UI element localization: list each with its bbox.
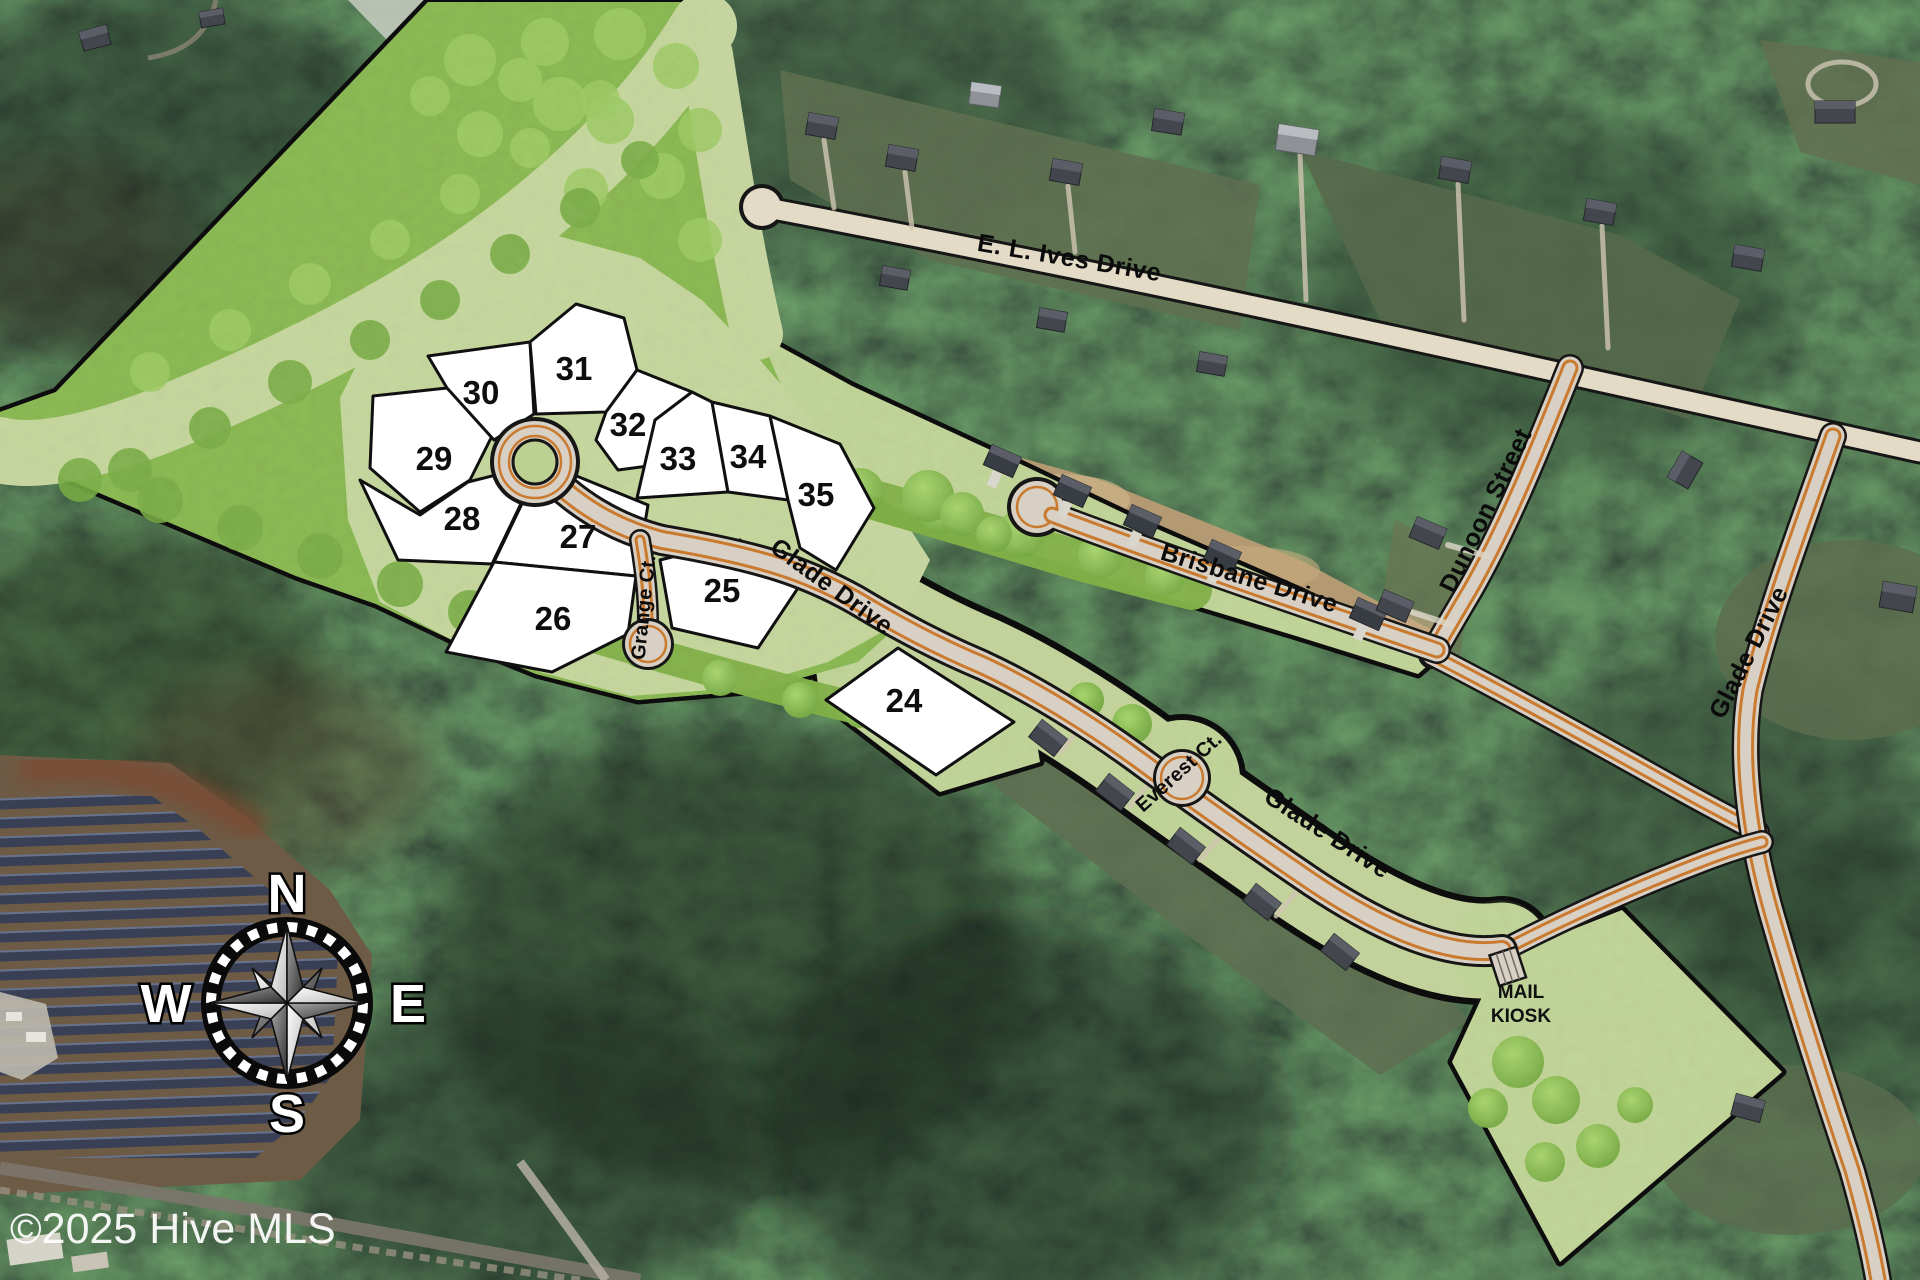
lot-34-label: 34 — [730, 438, 767, 475]
house — [1731, 245, 1764, 272]
lot-30-label: 30 — [463, 374, 500, 411]
compass-west-label: W — [141, 974, 192, 1034]
house — [1583, 199, 1616, 226]
lot-24-label: 24 — [886, 682, 923, 719]
lot-27-label: 27 — [560, 518, 597, 555]
house-red-roof — [1879, 581, 1917, 613]
mail-kiosk-label-line1: MAIL — [1498, 982, 1545, 1003]
lot-26-label: 26 — [535, 600, 572, 637]
house — [199, 8, 225, 28]
house — [885, 145, 918, 172]
lot-32-label: 32 — [610, 406, 647, 443]
compass-north-label: N — [268, 864, 307, 924]
lot-28-label: 28 — [444, 500, 481, 537]
lot-33-label: 33 — [660, 440, 697, 477]
house — [1815, 101, 1855, 123]
lot-35-label: 35 — [798, 476, 835, 513]
lot-31-label: 31 — [556, 350, 593, 387]
compass-south-label: S — [269, 1084, 305, 1144]
house — [805, 113, 838, 140]
house — [879, 266, 910, 291]
watermark-copyright: ©2025 Hive MLS — [10, 1205, 336, 1253]
house — [969, 82, 1002, 108]
compass-east-label: E — [390, 974, 426, 1034]
lot-29-label: 29 — [416, 440, 453, 477]
house — [1151, 109, 1184, 135]
lot-25-label: 25 — [704, 572, 741, 609]
house — [1196, 352, 1227, 377]
map-canvas: 24 25 26 27 28 29 30 31 32 33 34 35 E. L… — [0, 0, 1920, 1280]
site-plan-map: 24 25 26 27 28 29 30 31 32 33 34 35 E. L… — [0, 0, 1920, 1280]
house — [1036, 308, 1067, 333]
house — [1049, 159, 1082, 186]
roundabout — [490, 417, 580, 507]
house — [1438, 157, 1471, 184]
mail-kiosk-label-line2: KIOSK — [1491, 1006, 1551, 1027]
roundabout-island — [513, 440, 557, 484]
house — [1275, 124, 1319, 156]
